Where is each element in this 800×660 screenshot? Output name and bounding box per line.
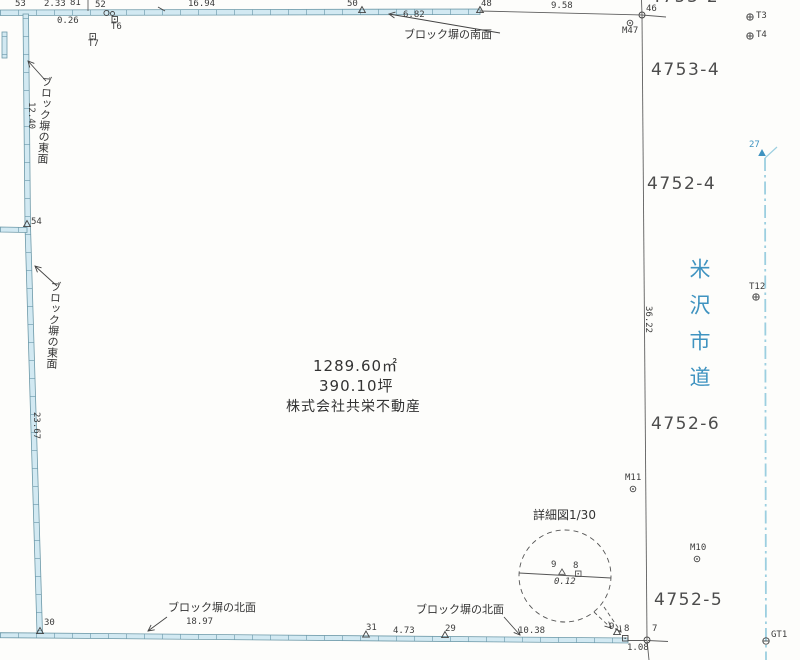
survey-markers: [24, 7, 770, 645]
dim-bottom-1_08: 1.08: [627, 644, 649, 653]
point-label-53: 53: [15, 0, 26, 9]
detail-point-label-9: 9: [551, 561, 556, 570]
dim-bottom-18_97: 18.97: [186, 618, 213, 627]
wall-label-north-left: ブロック塀の北面: [168, 599, 256, 615]
point-label-52: 52: [95, 1, 106, 10]
point-label-9: 9: [609, 623, 614, 632]
station-m10-marker: [694, 556, 700, 562]
cadastral-survey-map: 53 2.33 81 52 0.26 16.94 50 6.82 48 9.58…: [0, 0, 800, 660]
station-label-t4: T4: [756, 31, 767, 40]
detail-title: 詳細図1/30: [533, 506, 596, 523]
point-label-8: 8: [624, 625, 629, 634]
point-label-7: 7: [652, 625, 657, 634]
station-label-t7: T7: [88, 40, 99, 49]
station-label-t3: T3: [756, 12, 767, 21]
station-label-t6: T6: [111, 23, 122, 32]
dim-right-36_22: 36.22: [643, 306, 652, 333]
dim-bottom-10_38: 10.38: [518, 627, 545, 636]
point-label-50: 50: [347, 0, 358, 9]
point27-triangle: [758, 149, 766, 156]
station-label-gt1: GT1: [771, 631, 787, 640]
point-label-81: 81: [70, 0, 81, 8]
detail-point9-triangle: [559, 569, 565, 574]
station-t12-marker: [753, 294, 759, 300]
detail-dim-0_12: 0.12: [554, 578, 576, 587]
station-m11-marker: [630, 486, 636, 492]
wall-stub-midleft: [0, 227, 27, 233]
station-label-m10: M10: [690, 544, 706, 553]
point-label-30: 30: [44, 619, 55, 628]
parcel-label-4752-5: 4752-5: [654, 590, 723, 610]
site-owner: 株式会社共栄不動産: [286, 396, 421, 416]
dim-top-9_58: 9.58: [551, 2, 573, 11]
station-t3-marker: [747, 14, 753, 20]
dim-bottom-4_73: 4.73: [393, 627, 415, 636]
parcel-label-4752-6: 4752-6: [651, 414, 720, 434]
wall-label-south: ブロック塀の南面: [404, 26, 492, 42]
point-label-31: 31: [366, 624, 377, 633]
point-label-54: 54: [31, 218, 42, 227]
parcel-label-4752-4: 4752-4: [647, 174, 716, 194]
wall-stub-topleft: [2, 32, 7, 58]
point9-triangle: [614, 629, 621, 635]
station-label-m11: M11: [625, 474, 641, 483]
wall-label-north-right: ブロック塀の北面: [416, 601, 504, 617]
station-m47-marker: [627, 20, 633, 26]
station-t4-marker: [747, 33, 753, 39]
dim-top-0_26: 0.26: [57, 17, 79, 26]
point-label-27: 27: [749, 141, 760, 150]
road-name: 米沢市道: [684, 258, 714, 402]
point-label-29: 29: [445, 625, 456, 634]
dim-top-16_94: 16.94: [188, 0, 215, 9]
label-leaders: [28, 7, 520, 635]
site-area-m2: 1289.60㎡: [313, 355, 398, 376]
dim-top-6_82: 6.82: [403, 11, 425, 20]
parcel-label-4753-4: 4753-4: [651, 60, 720, 80]
road-centerline: [758, 147, 777, 660]
parcel-label-4753-2: 4753-2: [650, 0, 719, 7]
dim-left-12_40: 12.40: [26, 102, 35, 129]
dim-top-2_33: 2.33: [44, 0, 66, 9]
site-area-tsubo: 390.10坪: [319, 375, 394, 396]
point-label-48: 48: [481, 0, 492, 9]
dim-left-23_67: 23.67: [31, 412, 40, 439]
station-label-m47: M47: [622, 27, 638, 36]
station-label-t12: T12: [749, 283, 765, 292]
survey-linework: [0, 0, 800, 660]
boundary-lines: [88, 0, 668, 660]
detail-point-label-8: 8: [573, 562, 578, 571]
